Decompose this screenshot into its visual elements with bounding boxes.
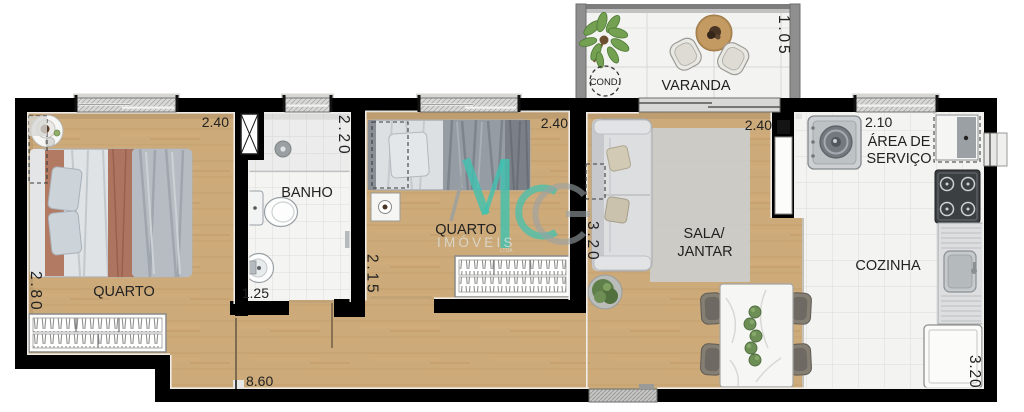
- svg-text:2.40: 2.40: [745, 117, 772, 133]
- svg-text:2.15: 2.15: [364, 254, 381, 295]
- svg-text:COND.: COND.: [590, 77, 621, 88]
- svg-text:COZINHA: COZINHA: [855, 258, 921, 274]
- svg-text:3.20: 3.20: [966, 355, 983, 388]
- svg-text:LTDA: LTDA: [500, 248, 513, 254]
- svg-text:QUARTO: QUARTO: [93, 284, 155, 300]
- svg-text:2.10: 2.10: [865, 114, 892, 130]
- svg-text:8.60: 8.60: [246, 373, 273, 389]
- svg-text:3.20: 3.20: [584, 221, 601, 262]
- svg-text:2.40: 2.40: [541, 115, 568, 131]
- svg-text:1.25: 1.25: [242, 285, 269, 301]
- svg-text:1.05: 1.05: [775, 15, 792, 56]
- svg-text:SERVIÇO: SERVIÇO: [866, 151, 931, 167]
- svg-text:2.20: 2.20: [335, 115, 352, 156]
- svg-text:JANTAR: JANTAR: [677, 244, 732, 260]
- svg-text:2.80: 2.80: [27, 271, 44, 312]
- svg-text:BANHO: BANHO: [281, 185, 333, 201]
- svg-text:ÁREA DE: ÁREA DE: [868, 133, 931, 150]
- svg-text:2.40: 2.40: [202, 114, 229, 130]
- svg-text:SALA/: SALA/: [683, 226, 725, 242]
- svg-text:VARANDA: VARANDA: [661, 78, 730, 94]
